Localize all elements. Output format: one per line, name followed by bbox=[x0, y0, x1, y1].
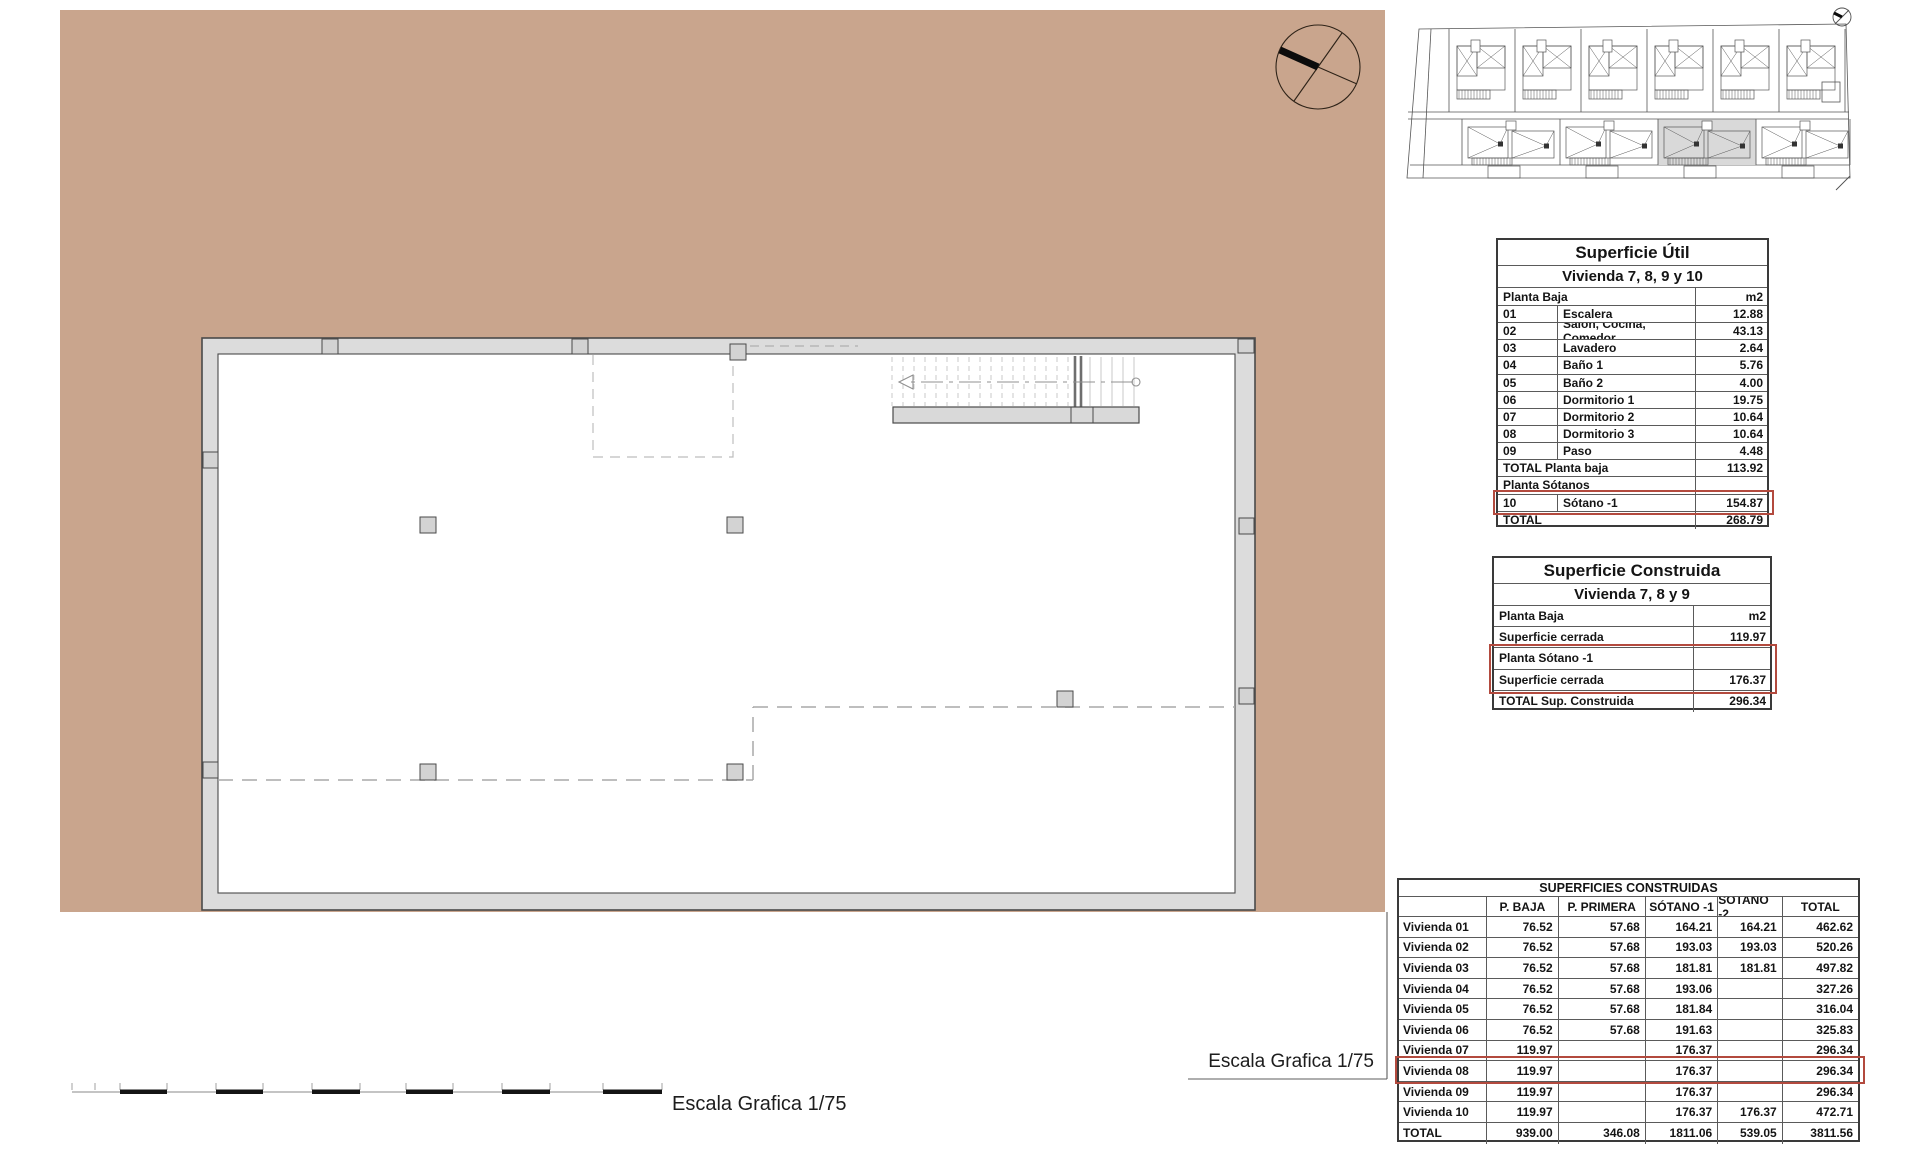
row-value bbox=[1717, 1020, 1781, 1040]
table-row: 01Escalera12.88 bbox=[1498, 306, 1767, 323]
row-value: 497.82 bbox=[1782, 958, 1858, 978]
column-marker bbox=[420, 517, 436, 533]
table-title-text: Superficie Construida bbox=[1544, 561, 1721, 581]
row-value: 176.37 bbox=[1717, 1102, 1781, 1122]
column-header: SÓTANO -2 bbox=[1717, 897, 1781, 916]
row-value: 539.05 bbox=[1717, 1123, 1781, 1144]
row-value: 119.97 bbox=[1486, 1041, 1557, 1061]
row-value: 57.68 bbox=[1558, 958, 1645, 978]
row-value: 325.83 bbox=[1782, 1020, 1858, 1040]
row-value: 57.68 bbox=[1558, 917, 1645, 937]
column-marker bbox=[1057, 691, 1073, 707]
row-value bbox=[1717, 1082, 1781, 1102]
row-value: 10.64 bbox=[1695, 426, 1767, 442]
row-value bbox=[1558, 1061, 1645, 1081]
row-label: Vivienda 10 bbox=[1399, 1102, 1486, 1122]
table-row: 02Salón, Cocina, Comedor43.13 bbox=[1498, 323, 1767, 340]
row-label: Vivienda 07 bbox=[1399, 1041, 1486, 1061]
table-row: Vivienda 0676.5257.68191.63325.83 bbox=[1399, 1020, 1858, 1041]
table-subtitle-text: Vivienda 7, 8 y 9 bbox=[1574, 586, 1690, 603]
row-value: 113.92 bbox=[1695, 460, 1767, 476]
row-label: Planta Sótanos bbox=[1498, 477, 1695, 493]
table-subtitle: Vivienda 7, 8 y 9 bbox=[1494, 584, 1770, 606]
row-name: Baño 2 bbox=[1557, 375, 1695, 391]
table-row: Superficie cerrada119.97 bbox=[1494, 627, 1770, 648]
row-value: 1811.06 bbox=[1645, 1123, 1717, 1144]
scale-label-bar: Escala Grafica 1/75 bbox=[672, 1093, 847, 1116]
row-value: 327.26 bbox=[1782, 979, 1858, 999]
row-number: 02 bbox=[1498, 323, 1557, 339]
row-number: 10 bbox=[1498, 495, 1557, 511]
superficies-construidas-table: SUPERFICIES CONSTRUIDAS P. BAJAP. PRIMER… bbox=[1397, 878, 1860, 1142]
row-value: 76.52 bbox=[1486, 979, 1557, 999]
row-value bbox=[1717, 1041, 1781, 1061]
row-value: 57.68 bbox=[1558, 999, 1645, 1019]
row-value: 76.52 bbox=[1486, 999, 1557, 1019]
row-number: 06 bbox=[1498, 392, 1557, 408]
row-value: 43.13 bbox=[1695, 323, 1767, 339]
row-value: 12.88 bbox=[1695, 306, 1767, 322]
row-label: Superficie cerrada bbox=[1494, 627, 1693, 647]
table-row: 05Baño 24.00 bbox=[1498, 375, 1767, 392]
row-value: 4.48 bbox=[1695, 443, 1767, 459]
row-value: 119.97 bbox=[1486, 1061, 1557, 1081]
table-row: TOTAL Sup. Construida296.34 bbox=[1494, 691, 1770, 712]
table-row: 06Dormitorio 119.75 bbox=[1498, 392, 1767, 409]
table-subtitle-text: Vivienda 7, 8, 9 y 10 bbox=[1562, 268, 1703, 285]
row-value: 164.21 bbox=[1717, 917, 1781, 937]
row-label: Planta Sótano -1 bbox=[1494, 648, 1693, 668]
table-row: Vivienda 0576.5257.68181.84316.04 bbox=[1399, 999, 1858, 1020]
table-row: Vivienda 10119.97176.37176.37472.71 bbox=[1399, 1102, 1858, 1123]
mini-north-arrow-icon bbox=[1833, 8, 1851, 26]
row-label: TOTAL bbox=[1498, 512, 1695, 529]
row-value: 181.81 bbox=[1717, 958, 1781, 978]
table-row: 03Lavadero2.64 bbox=[1498, 340, 1767, 357]
row-value bbox=[1558, 1082, 1645, 1102]
table-header-row: Planta Baja m2 bbox=[1498, 288, 1767, 306]
row-label: Superficie cerrada bbox=[1494, 670, 1693, 690]
column-marker bbox=[203, 452, 218, 468]
table-row: 09Paso4.48 bbox=[1498, 443, 1767, 460]
row-label: Vivienda 03 bbox=[1399, 958, 1486, 978]
row-value: 164.21 bbox=[1645, 917, 1717, 937]
row-number: 08 bbox=[1498, 426, 1557, 442]
row-value bbox=[1558, 1041, 1645, 1061]
row-name: Dormitorio 3 bbox=[1557, 426, 1695, 442]
row-value: 939.00 bbox=[1486, 1123, 1557, 1144]
row-label: Vivienda 01 bbox=[1399, 917, 1486, 937]
table-row: Planta Sótano -1 bbox=[1494, 648, 1770, 669]
row-value: 296.34 bbox=[1693, 691, 1770, 712]
row-label: Vivienda 08 bbox=[1399, 1061, 1486, 1081]
row-label: Vivienda 02 bbox=[1399, 938, 1486, 958]
row-value: 5.76 bbox=[1695, 357, 1767, 373]
row-value: 296.34 bbox=[1782, 1041, 1858, 1061]
table-row: Vivienda 0376.5257.68181.81181.81497.82 bbox=[1399, 958, 1858, 979]
row-name: Lavadero bbox=[1557, 340, 1695, 356]
table-subtitle: Vivienda 7, 8, 9 y 10 bbox=[1498, 266, 1767, 288]
column-header bbox=[1399, 897, 1486, 916]
row-label: Vivienda 09 bbox=[1399, 1082, 1486, 1102]
row-name: Sótano -1 bbox=[1557, 495, 1695, 511]
row-value bbox=[1717, 1061, 1781, 1081]
graphic-scale-bar bbox=[72, 1083, 662, 1094]
column-header: P. BAJA bbox=[1486, 897, 1557, 916]
row-value: 76.52 bbox=[1486, 1020, 1557, 1040]
table-row: Planta Sótanos bbox=[1498, 477, 1767, 494]
row-value: 176.37 bbox=[1693, 670, 1770, 690]
row-name: Dormitorio 2 bbox=[1557, 409, 1695, 425]
superficie-construida-table: Superficie Construida Vivienda 7, 8 y 9 … bbox=[1492, 556, 1772, 710]
drawing-sheet: Superficie Útil Vivienda 7, 8, 9 y 10 Pl… bbox=[0, 0, 1920, 1166]
table-title: Superficie Construida bbox=[1494, 558, 1770, 584]
row-value: 76.52 bbox=[1486, 917, 1557, 937]
column-marker bbox=[1239, 518, 1254, 534]
column-marker bbox=[730, 344, 746, 360]
header-unit: m2 bbox=[1695, 288, 1767, 305]
row-value bbox=[1717, 999, 1781, 1019]
table-row: TOTAL Planta baja113.92 bbox=[1498, 460, 1767, 477]
row-value: 57.68 bbox=[1558, 979, 1645, 999]
row-name: Salón, Cocina, Comedor bbox=[1557, 323, 1695, 339]
row-value bbox=[1717, 979, 1781, 999]
row-value: 346.08 bbox=[1558, 1123, 1645, 1144]
table-title-text: Superficie Útil bbox=[1575, 243, 1689, 263]
table-title: SUPERFICIES CONSTRUIDAS bbox=[1399, 880, 1858, 897]
column-header: P. PRIMERA bbox=[1558, 897, 1645, 916]
row-number: 01 bbox=[1498, 306, 1557, 322]
row-value: 520.26 bbox=[1782, 938, 1858, 958]
table-row: Vivienda 07119.97176.37296.34 bbox=[1399, 1041, 1858, 1062]
column-marker bbox=[572, 339, 588, 354]
row-number: 04 bbox=[1498, 357, 1557, 373]
row-value: 296.34 bbox=[1782, 1082, 1858, 1102]
north-arrow-icon bbox=[1276, 25, 1360, 109]
table-row: 08Dormitorio 310.64 bbox=[1498, 426, 1767, 443]
stair-landing-wall bbox=[893, 407, 1139, 423]
row-value: 181.81 bbox=[1645, 958, 1717, 978]
row-value bbox=[1695, 477, 1767, 493]
row-number: 05 bbox=[1498, 375, 1557, 391]
row-label: Planta Baja bbox=[1494, 606, 1693, 626]
row-label: Vivienda 06 bbox=[1399, 1020, 1486, 1040]
table-row: Vivienda 0276.5257.68193.03193.03520.26 bbox=[1399, 938, 1858, 959]
row-value bbox=[1558, 1102, 1645, 1122]
row-value: 296.34 bbox=[1782, 1061, 1858, 1081]
row-name: Escalera bbox=[1557, 306, 1695, 322]
row-value: 119.97 bbox=[1486, 1102, 1557, 1122]
row-label: TOTAL Planta baja bbox=[1498, 460, 1695, 476]
column-marker bbox=[322, 339, 338, 354]
table-row: Superficie cerrada176.37 bbox=[1494, 670, 1770, 691]
row-value: 193.03 bbox=[1717, 938, 1781, 958]
table-row: TOTAL268.79 bbox=[1498, 512, 1767, 529]
column-marker bbox=[1239, 688, 1254, 704]
row-value: 3811.56 bbox=[1782, 1123, 1858, 1144]
table-row: Vivienda 0476.5257.68193.06327.26 bbox=[1399, 979, 1858, 1000]
row-value: 176.37 bbox=[1645, 1041, 1717, 1061]
column-marker bbox=[1238, 339, 1254, 353]
table-row: Vivienda 09119.97176.37296.34 bbox=[1399, 1082, 1858, 1103]
table-row: 07Dormitorio 210.64 bbox=[1498, 409, 1767, 426]
superficie-util-table: Superficie Útil Vivienda 7, 8, 9 y 10 Pl… bbox=[1496, 238, 1769, 527]
row-label: Vivienda 04 bbox=[1399, 979, 1486, 999]
row-value: 176.37 bbox=[1645, 1102, 1717, 1122]
column-marker bbox=[203, 762, 218, 778]
column-marker bbox=[727, 764, 743, 780]
row-label: TOTAL bbox=[1399, 1123, 1486, 1144]
row-value: 316.04 bbox=[1782, 999, 1858, 1019]
row-value: 193.03 bbox=[1645, 938, 1717, 958]
table-row: 04Baño 15.76 bbox=[1498, 357, 1767, 374]
row-number: 07 bbox=[1498, 409, 1557, 425]
row-label: TOTAL Sup. Construida bbox=[1494, 691, 1693, 712]
column-marker bbox=[420, 764, 436, 780]
row-value: 76.52 bbox=[1486, 938, 1557, 958]
row-value: 2.64 bbox=[1695, 340, 1767, 356]
row-value bbox=[1693, 648, 1770, 668]
row-value: 19.75 bbox=[1695, 392, 1767, 408]
scale-label-plan: Escala Grafica 1/75 bbox=[1139, 1051, 1374, 1073]
row-label: Vivienda 05 bbox=[1399, 999, 1486, 1019]
row-value: 119.97 bbox=[1486, 1082, 1557, 1102]
row-value: 176.37 bbox=[1645, 1082, 1717, 1102]
column-marker bbox=[727, 517, 743, 533]
row-name: Dormitorio 1 bbox=[1557, 392, 1695, 408]
row-value: 154.87 bbox=[1695, 495, 1767, 511]
table-row: Planta Bajam2 bbox=[1494, 606, 1770, 627]
table-title: Superficie Útil bbox=[1498, 240, 1767, 266]
row-value: 119.97 bbox=[1693, 627, 1770, 647]
table-row: TOTAL939.00346.081811.06539.053811.56 bbox=[1399, 1123, 1858, 1144]
row-number: 09 bbox=[1498, 443, 1557, 459]
table-header-row: P. BAJAP. PRIMERASÓTANO -1SÓTANO -2TOTAL bbox=[1399, 897, 1858, 917]
table-row: Vivienda 0176.5257.68164.21164.21462.62 bbox=[1399, 917, 1858, 938]
row-name: Baño 1 bbox=[1557, 357, 1695, 373]
column-header: TOTAL bbox=[1782, 897, 1858, 916]
row-value: 193.06 bbox=[1645, 979, 1717, 999]
row-value: m2 bbox=[1693, 606, 1770, 626]
row-value: 4.00 bbox=[1695, 375, 1767, 391]
row-value: 181.84 bbox=[1645, 999, 1717, 1019]
row-value: 57.68 bbox=[1558, 938, 1645, 958]
row-value: 76.52 bbox=[1486, 958, 1557, 978]
plan-outer-wall bbox=[202, 338, 1255, 910]
row-number: 03 bbox=[1498, 340, 1557, 356]
row-value: 57.68 bbox=[1558, 1020, 1645, 1040]
table-title-text: SUPERFICIES CONSTRUIDAS bbox=[1539, 881, 1718, 895]
row-name: Paso bbox=[1557, 443, 1695, 459]
row-value: 268.79 bbox=[1695, 512, 1767, 529]
header-label: Planta Baja bbox=[1498, 288, 1695, 305]
column-header: SÓTANO -1 bbox=[1645, 897, 1717, 916]
row-value: 10.64 bbox=[1695, 409, 1767, 425]
row-value: 472.71 bbox=[1782, 1102, 1858, 1122]
row-value: 191.63 bbox=[1645, 1020, 1717, 1040]
table-row: 10Sótano -1154.87 bbox=[1498, 495, 1767, 512]
table-row: Vivienda 08119.97176.37296.34 bbox=[1399, 1061, 1858, 1082]
row-value: 176.37 bbox=[1645, 1061, 1717, 1081]
row-value: 462.62 bbox=[1782, 917, 1858, 937]
